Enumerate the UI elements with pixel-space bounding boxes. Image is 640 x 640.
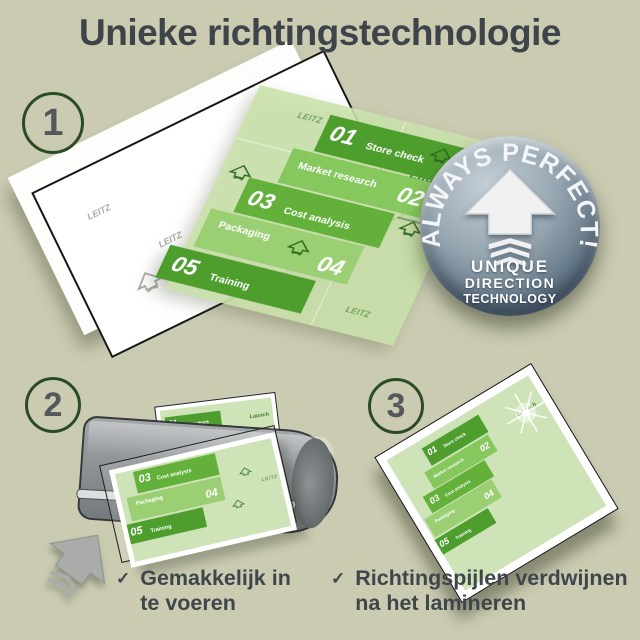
step-3-number: 3 — [368, 378, 424, 434]
product-feature-graphic: Unieke richtingstechnologie 1 2 3 LEITZ … — [0, 0, 640, 640]
badge-line-direction: DIRECTION — [420, 276, 600, 292]
box-label: Market research — [296, 160, 379, 190]
direction-arrow-icon — [283, 236, 315, 260]
box-label: Cost analysis — [156, 468, 192, 482]
always-perfect-badge: ALWAYS PERFECT! UNIQUE DIRECTION TECHNOL… — [420, 136, 600, 316]
step-1-label: 1 — [42, 102, 63, 145]
checkmark-icon: ✓ — [116, 566, 130, 617]
step-2-number: 2 — [25, 377, 81, 433]
step-3-label: 3 — [387, 387, 406, 426]
box-number: 01 — [426, 445, 439, 458]
box-label: Store check — [363, 140, 426, 165]
badge-line-technology: TECHNOLOGY — [420, 292, 600, 306]
page-title: Unieke richtingstechnologie — [0, 12, 640, 54]
box-number: 03 — [428, 493, 441, 506]
benefit-bullet-1: ✓ Gemakkelijk in te voeren — [116, 566, 291, 617]
box-label: Training — [207, 271, 252, 292]
badge-arrow-icon — [466, 169, 555, 266]
direction-arrow-icon — [231, 498, 246, 512]
box-number: 03 — [244, 187, 279, 214]
benefit-line: na het lamineren — [355, 591, 627, 616]
box-label: Store check — [442, 431, 466, 448]
box-number: 04 — [313, 252, 348, 279]
box-number: 03 — [138, 472, 152, 485]
watermark-text: LEITZ — [86, 202, 113, 222]
step-2-label: 2 — [44, 386, 63, 425]
benefit-text: Richtingspijlen verdwijnen na het lamine… — [355, 566, 627, 617]
watermark-text: LEITZ — [296, 111, 324, 125]
watermark-text: LEITZ — [261, 474, 278, 484]
box-label: Packaging — [434, 508, 456, 524]
direction-arrow-icon — [238, 465, 253, 479]
box-number: 05 — [168, 253, 203, 280]
box-label: Packaging — [136, 495, 164, 507]
direction-arrow-icon — [225, 161, 257, 185]
laminator-end-cap — [289, 437, 337, 530]
box-label: Training — [150, 524, 172, 535]
benefit-line: Richtingspijlen verdwijnen — [355, 566, 627, 591]
benefit-text: Gemakkelijk in te voeren — [140, 566, 291, 617]
box-number: 05 — [438, 536, 451, 549]
step-1-number: 1 — [22, 92, 84, 154]
checkmark-icon: ✓ — [331, 566, 345, 617]
benefit-line: Gemakkelijk in — [140, 566, 291, 591]
box-number: 01 — [326, 122, 361, 149]
box-number: 04 — [205, 488, 219, 501]
starburst-icon — [494, 381, 557, 444]
benefit-bullet-2: ✓ Richtingspijlen verdwijnen na het lami… — [331, 566, 628, 617]
benefit-line: te voeren — [140, 591, 291, 616]
launch-label: Launch — [249, 412, 269, 420]
badge-line-unique: UNIQUE — [420, 257, 600, 276]
box-number: 05 — [129, 526, 143, 539]
box-number: 02 — [478, 441, 491, 454]
watermark-text: LEITZ — [344, 305, 372, 319]
box-number: 04 — [483, 489, 496, 502]
box-label: Packaging — [216, 219, 272, 243]
badge-text-block: UNIQUE DIRECTION TECHNOLOGY — [420, 257, 600, 306]
box-label: Training — [454, 527, 472, 540]
